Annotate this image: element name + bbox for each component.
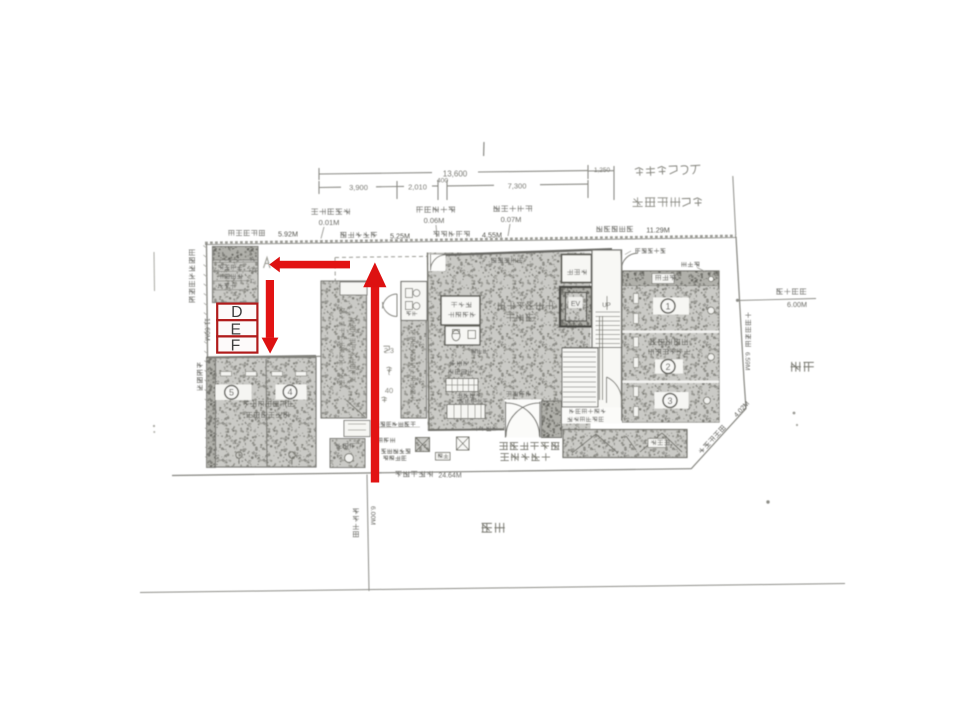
svg-text:40: 40 — [385, 386, 393, 395]
svg-text:1,250: 1,250 — [594, 167, 611, 174]
svg-text:24.64M: 24.64M — [438, 473, 462, 480]
svg-text:11.60M: 11.60M — [203, 318, 210, 341]
svg-text:2.3: 2.3 — [384, 348, 394, 355]
svg-text:7,300: 7,300 — [508, 182, 527, 191]
svg-text:0.06M: 0.06M — [424, 216, 445, 225]
svg-text:C: C — [251, 279, 255, 285]
svg-text:EV: EV — [571, 301, 581, 308]
svg-text:5.25M: 5.25M — [390, 232, 410, 241]
svg-text:0.07M: 0.07M — [501, 215, 522, 224]
svg-text:1: 1 — [665, 301, 670, 311]
svg-text:t: t — [388, 370, 390, 377]
svg-text:3,900: 3,900 — [349, 183, 368, 192]
svg-text:6.00M: 6.00M — [787, 300, 807, 309]
svg-text:6.59M: 6.59M — [744, 352, 751, 370]
svg-text:5: 5 — [229, 388, 234, 398]
svg-text:11.29M: 11.29M — [646, 226, 669, 235]
svg-text:D: D — [231, 304, 242, 321]
svg-text:400: 400 — [437, 178, 449, 185]
svg-text:2,010: 2,010 — [408, 183, 427, 192]
svg-text:F: F — [231, 337, 241, 354]
svg-text:UP: UP — [602, 302, 611, 309]
svg-text:0.01M: 0.01M — [319, 218, 340, 227]
svg-text:FC: FC — [249, 268, 256, 274]
svg-text:4: 4 — [287, 387, 292, 397]
svg-text:A: A — [250, 257, 254, 263]
svg-text:2: 2 — [665, 362, 670, 372]
svg-text:4.55M: 4.55M — [482, 231, 502, 240]
svg-text:3: 3 — [667, 396, 672, 406]
svg-text:6.00M: 6.00M — [369, 506, 376, 525]
svg-text:5.92M: 5.92M — [278, 230, 298, 239]
